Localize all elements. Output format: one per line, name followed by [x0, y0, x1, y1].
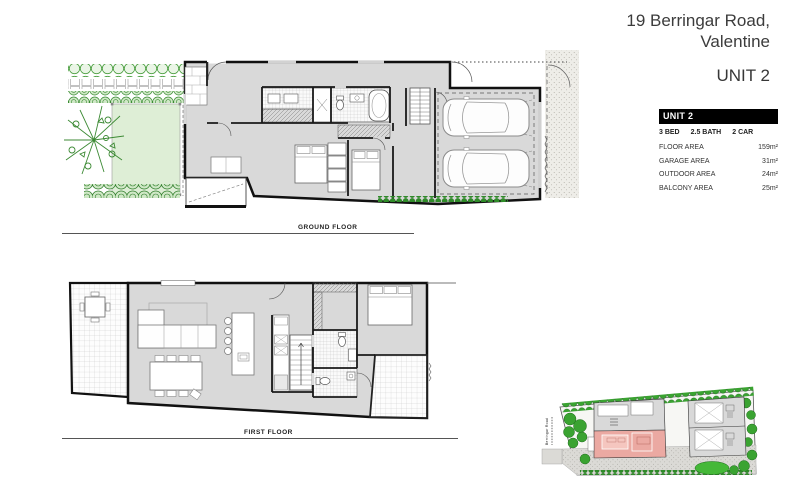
- bathtub-icon: [369, 90, 389, 121]
- stairs-icon: [290, 335, 312, 390]
- bed-icon: [352, 150, 380, 190]
- window: [161, 281, 195, 286]
- door-arc: [452, 62, 472, 82]
- spec-beds: 3 BED: [659, 129, 680, 136]
- bed-icon: [295, 145, 327, 183]
- balcony: [70, 283, 128, 397]
- ground-floor-building: [185, 50, 579, 207]
- entry-porch: [185, 67, 207, 105]
- road-label-group: Berringar Road: [545, 417, 552, 445]
- first-floor-label: FIRST FLOOR: [244, 429, 293, 436]
- appliance-icon: [284, 94, 298, 103]
- area-label: OUTDOOR AREA: [659, 168, 715, 182]
- toilet-icon: [337, 96, 344, 110]
- dining-table-icon: [150, 356, 202, 400]
- shrub-border-icon: [84, 184, 180, 198]
- shower-room: [313, 88, 331, 122]
- area-row-floor: FLOOR AREA 159m²: [659, 141, 778, 155]
- kitchen-counter: [273, 315, 289, 392]
- area-label: GARAGE AREA: [659, 155, 710, 169]
- basin-icon: [347, 372, 355, 380]
- wardrobe-stack: [328, 143, 346, 192]
- bedroom2: [328, 143, 380, 192]
- terrace: [370, 355, 427, 418]
- area-value: 24m²: [762, 168, 778, 182]
- first-floor-caption-line: [62, 438, 458, 439]
- ground-floor-plan: [58, 36, 610, 214]
- shrub-row-icon: [68, 91, 186, 103]
- stairs-icon: [410, 88, 430, 124]
- hedge-row-icon: [68, 64, 186, 77]
- bathroom: [331, 88, 390, 122]
- area-label: BALCONY AREA: [659, 182, 713, 196]
- crossover: [542, 449, 562, 464]
- vanity-icon: [349, 349, 357, 361]
- bench-icon: [211, 157, 241, 173]
- driveway: [545, 50, 579, 198]
- building-units-3-4: [688, 397, 746, 457]
- wardrobe-hatch: [338, 125, 390, 138]
- area-row-garage: GARAGE AREA 31m²: [659, 155, 778, 169]
- area-label: FLOOR AREA: [659, 141, 704, 155]
- unit2-porch: [588, 437, 594, 451]
- car-icon: [443, 97, 529, 139]
- ensuite-bathroom: [313, 330, 357, 368]
- hedge-strip-icon: [378, 196, 508, 202]
- toilet-icon: [316, 378, 330, 385]
- floorplan-document-page: 19 Berringar Road, Valentine UNIT 2 UNIT…: [0, 0, 800, 484]
- area-row-balcony: BALCONY AREA 25m²: [659, 182, 778, 196]
- specs-row: 3 BED 2.5 BATH 2 CAR: [659, 129, 778, 136]
- road-label: Berringar Road: [545, 418, 549, 445]
- vent-squiggle: [429, 363, 431, 381]
- building-units-1-2: [588, 399, 666, 458]
- vanity-icon: [350, 94, 364, 102]
- area-rows: FLOOR AREA 159m² GARAGE AREA 31m² OUTDOO…: [659, 141, 778, 195]
- lawn: [112, 104, 180, 196]
- area-value: 25m²: [762, 182, 778, 196]
- area-value: 31m²: [762, 155, 778, 169]
- lawn-patch-icon: [695, 462, 729, 475]
- island-bench-icon: [232, 313, 254, 375]
- ground-floor-label: GROUND FLOOR: [298, 224, 357, 231]
- wardrobe-hatch: [262, 109, 313, 122]
- spec-baths: 2.5 BATH: [691, 129, 722, 136]
- car-icon: [443, 148, 529, 190]
- area-value: 159m²: [758, 141, 778, 155]
- lower-deck: [185, 178, 246, 207]
- first-floor-building: [128, 281, 456, 419]
- bed-icon: [368, 285, 412, 325]
- info-panel-header: UNIT 2: [659, 109, 778, 124]
- paver-path-icon: [68, 79, 186, 89]
- ground-floor-caption-line: [62, 233, 414, 234]
- fridge-icon: [275, 375, 288, 390]
- area-row-outdoor: OUTDOOR AREA 24m²: [659, 168, 778, 182]
- site-plan: Berringar Road: [540, 373, 796, 483]
- address-line-1: 19 Berringar Road,: [540, 10, 770, 31]
- spec-cars: 2 CAR: [732, 129, 753, 136]
- toilet-icon: [339, 333, 346, 347]
- appliance-icon: [268, 94, 280, 103]
- unit-info-panel: UNIT 2 3 BED 2.5 BATH 2 CAR FLOOR AREA 1…: [659, 109, 778, 195]
- first-floor-plan: [58, 273, 478, 448]
- garden-landscaping: [64, 64, 186, 198]
